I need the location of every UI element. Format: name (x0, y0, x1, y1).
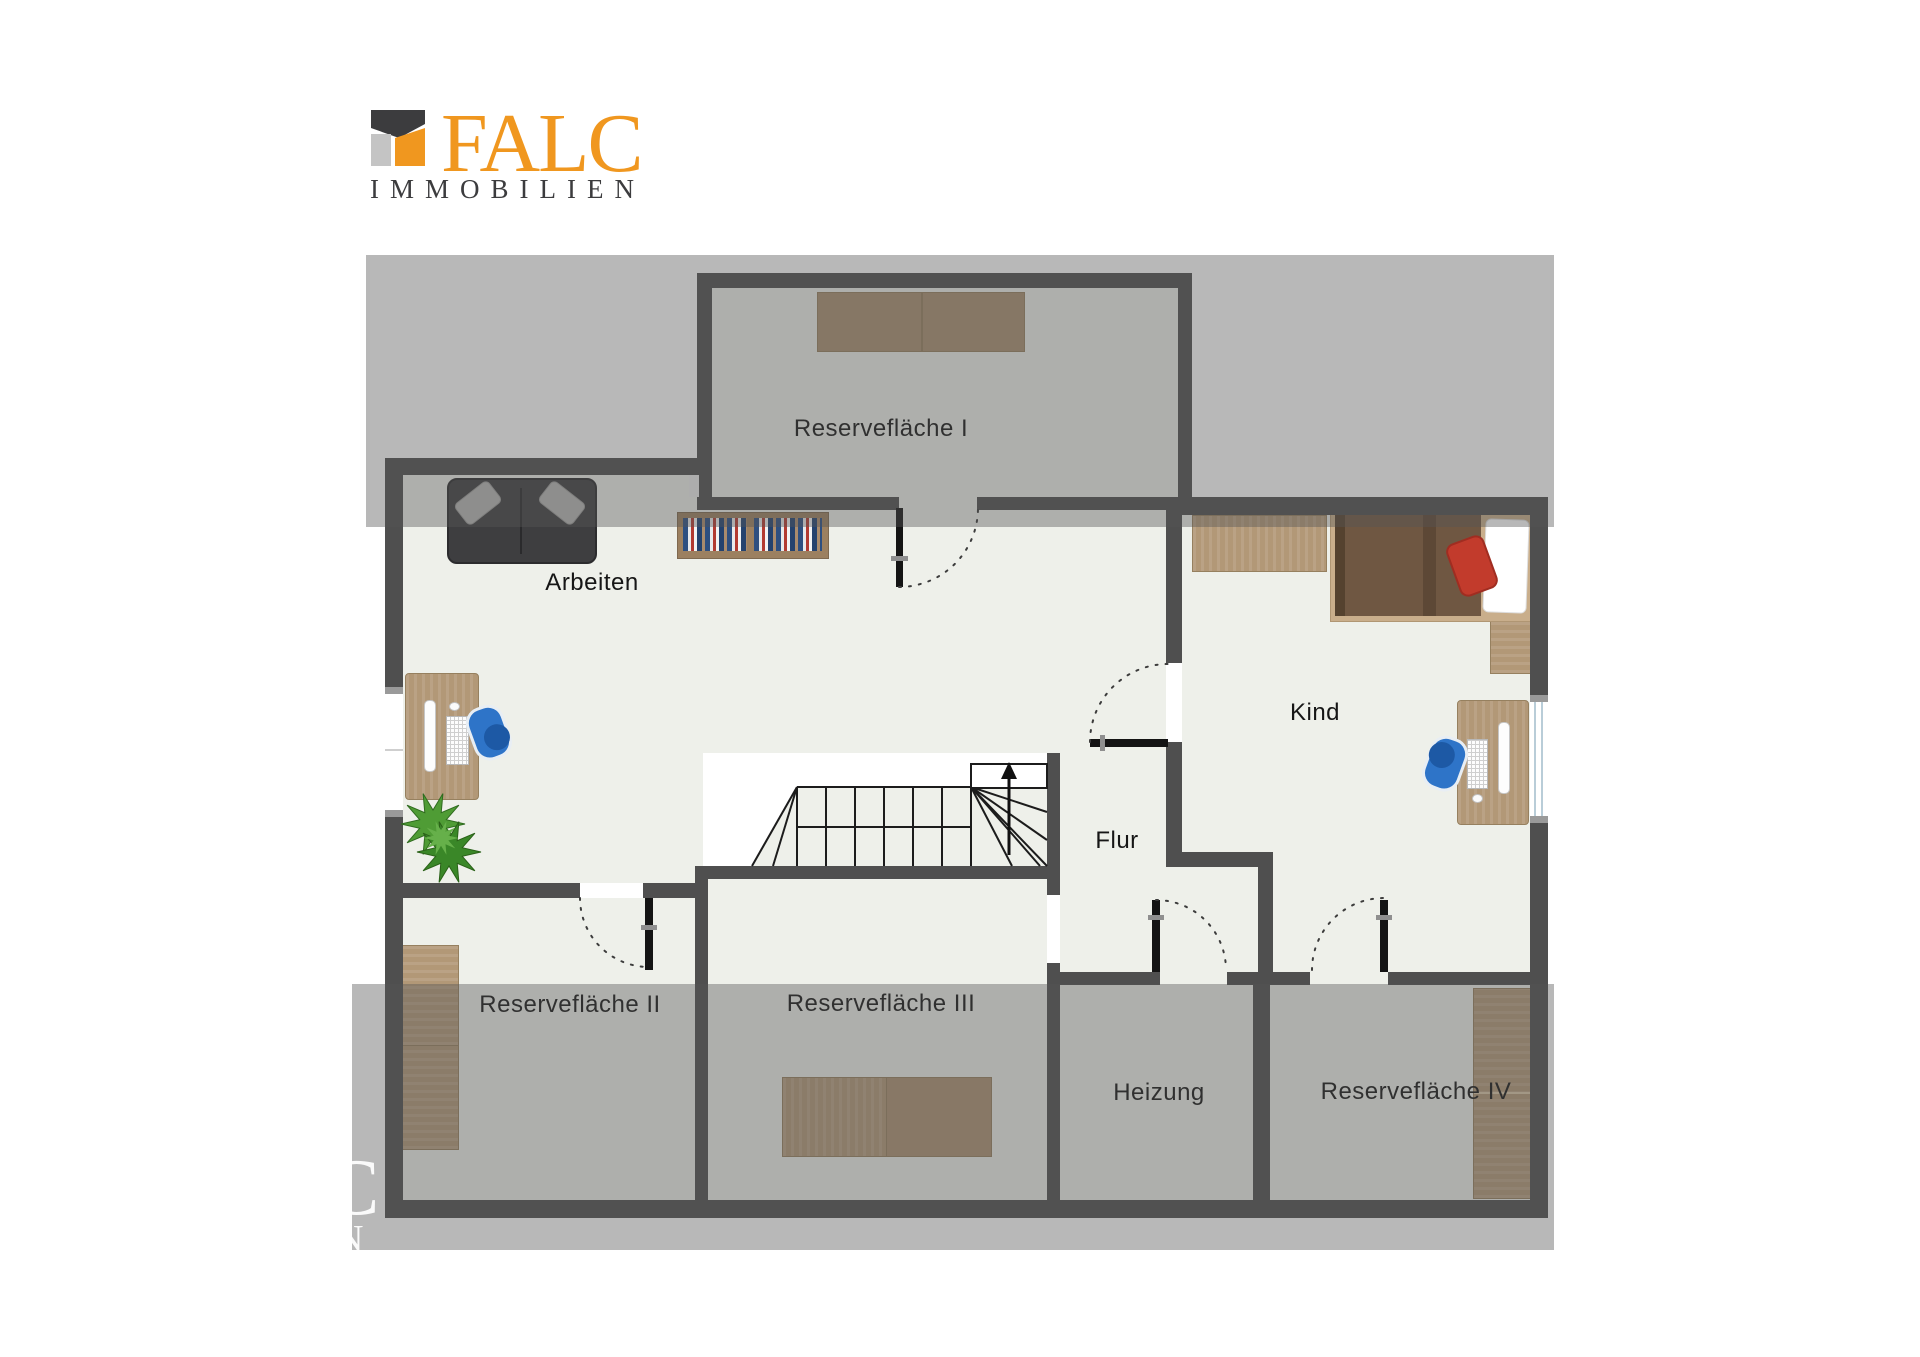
door-leaf-heizung (1152, 900, 1160, 972)
office-chair-arbeiten (463, 702, 516, 764)
door-leaves (645, 508, 1388, 972)
plant (401, 794, 481, 883)
door-swing-arcs (580, 508, 1384, 970)
room-label-reserveflaeche-2: Reservefläche II (479, 991, 660, 1019)
door-leaf-reserveflaeche-2 (645, 898, 653, 970)
room-label-reserveflaeche-3: Reservefläche III (787, 990, 976, 1018)
room-label-heizung: Heizung (1113, 1079, 1205, 1107)
room-label-arbeiten: Arbeiten (545, 569, 638, 597)
room-label-reserveflaeche-1: Reservefläche I (794, 415, 968, 443)
door-hinge-marks (641, 556, 1392, 930)
bed-red-cushion (1445, 534, 1499, 598)
room-label-kind: Kind (1290, 699, 1340, 727)
sofa-cushions (453, 480, 586, 526)
plan-vector-overlay (0, 0, 1920, 1357)
door-leaf-reserveflaeche-4 (1380, 900, 1388, 972)
door-leaf-reserveflaeche-1 (896, 508, 903, 587)
room-label-reserveflaeche-4: Reservefläche IV (1321, 1078, 1512, 1106)
room-label-flur: Flur (1095, 827, 1138, 855)
office-chair-kind (1418, 733, 1471, 795)
